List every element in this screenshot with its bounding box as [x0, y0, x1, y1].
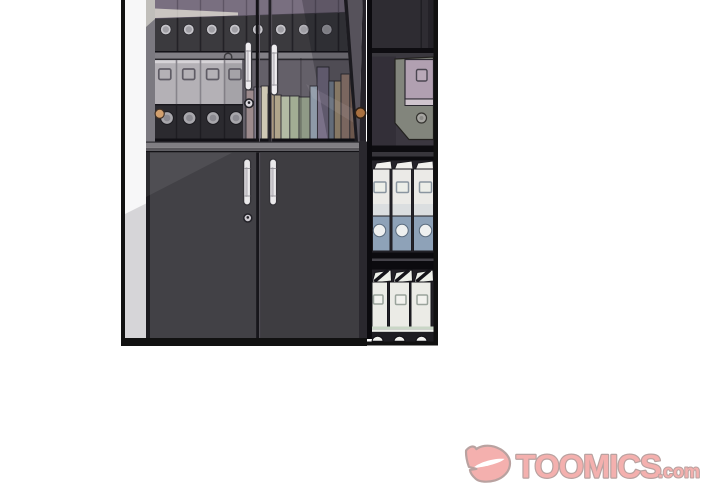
- svg-text:.com: .com: [658, 462, 700, 482]
- svg-text:TOOMICS: TOOMICS: [516, 449, 661, 485]
